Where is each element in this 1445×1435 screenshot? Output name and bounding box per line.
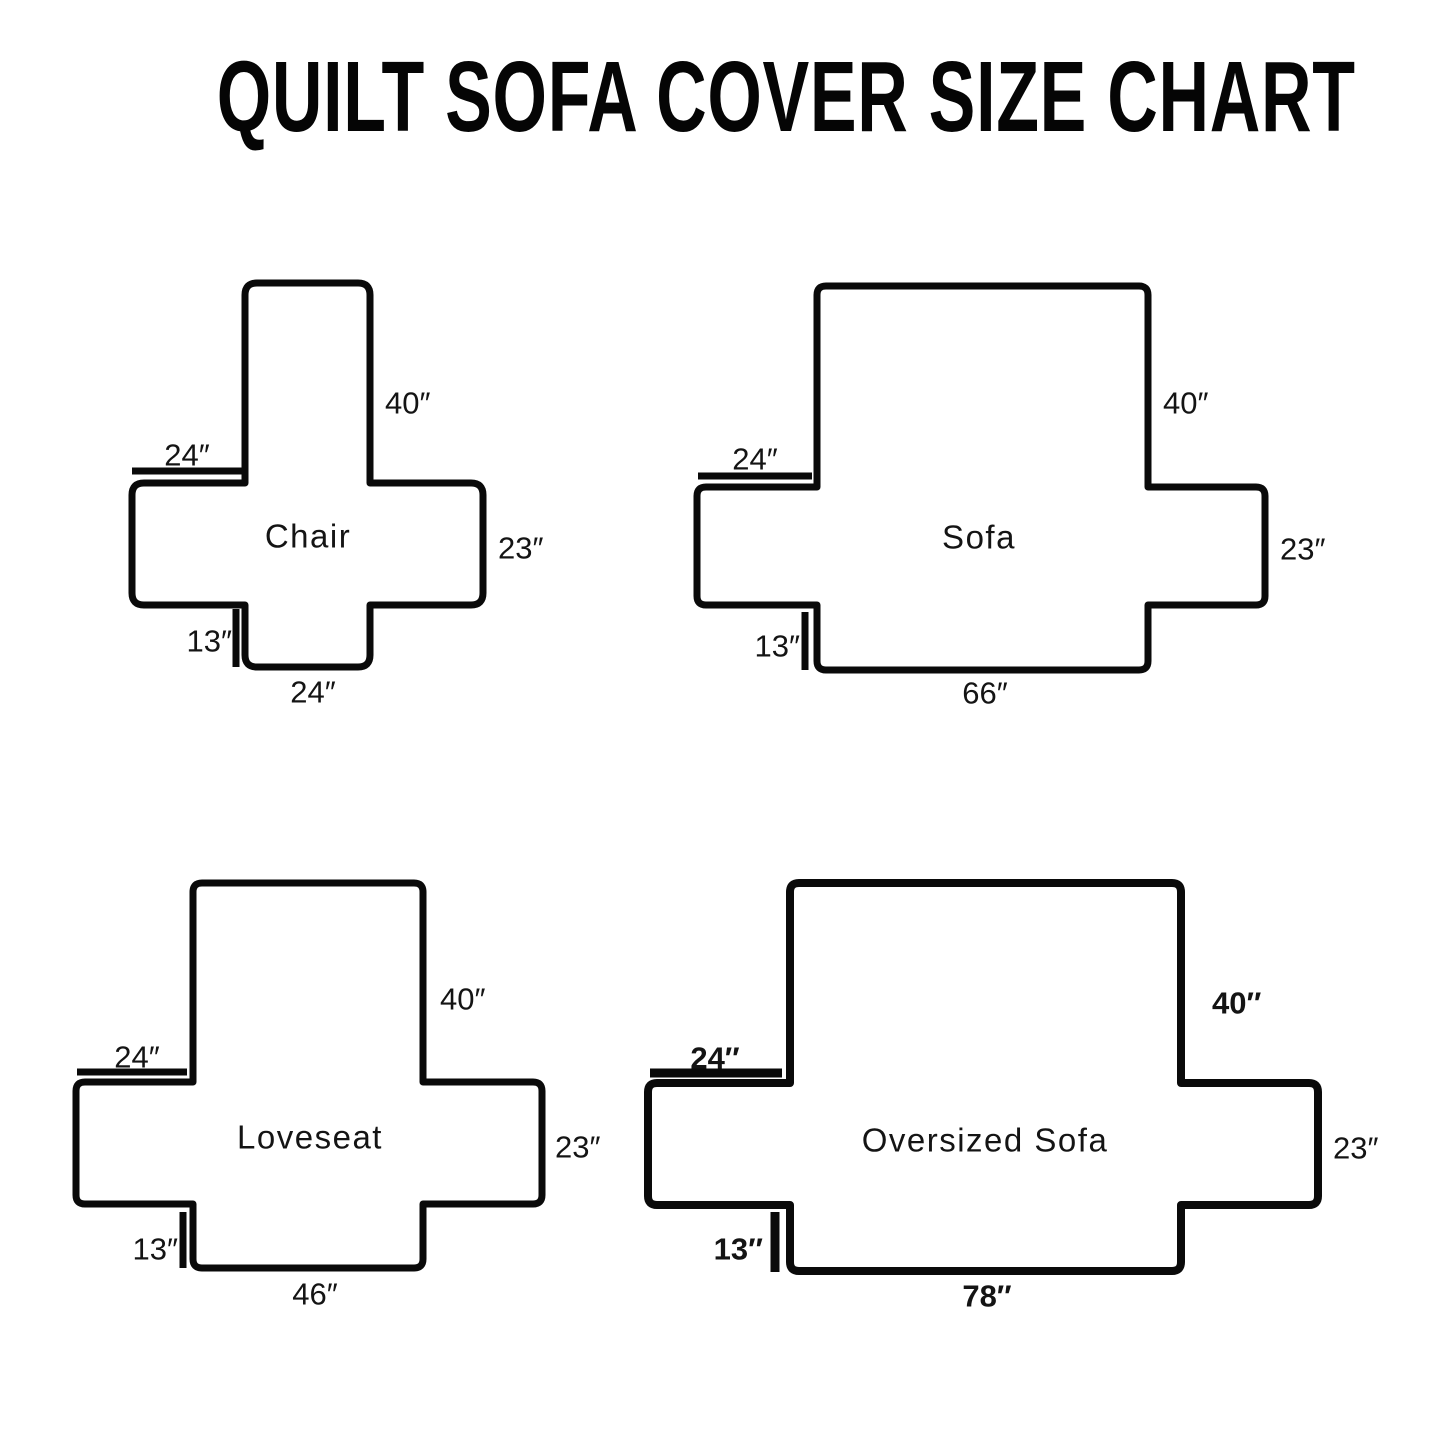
- sofa-seat-width-label: 66″: [962, 678, 1007, 709]
- oversized-sofa-skirt-drop-label: 13″: [714, 1234, 763, 1265]
- sofa-name-label: Sofa: [942, 521, 1016, 554]
- size-chart-page: QUILT SOFA COVER SIZE CHART 40″ 24″ Chai…: [0, 0, 1445, 1435]
- oversized-sofa-name-label: Oversized Sofa: [862, 1124, 1109, 1157]
- oversized-sofa-arm-depth-label: 23″: [1333, 1133, 1378, 1164]
- oversized-sofa-seat-width-label: 78″: [962, 1281, 1011, 1312]
- loveseat-seat-width-label: 46″: [292, 1279, 337, 1310]
- loveseat-name-label: Loveseat: [237, 1121, 383, 1154]
- chair-name-label: Chair: [265, 520, 351, 553]
- sofa-back-width-label: 24″: [732, 444, 777, 475]
- loveseat-back-width-label: 24″: [114, 1042, 159, 1073]
- loveseat-skirt-drop-label: 13″: [133, 1234, 178, 1265]
- chair-seat-width-label: 24″: [290, 677, 335, 708]
- oversized-sofa-back-height-label: 40″: [1212, 988, 1261, 1019]
- cover-outlines-layer: [0, 0, 1445, 1435]
- sofa-arm-depth-label: 23″: [1280, 534, 1325, 565]
- sofa-back-height-label: 40″: [1163, 388, 1208, 419]
- chair-arm-depth-label: 23″: [498, 533, 543, 564]
- oversized-sofa-back-width-label: 24″: [690, 1043, 739, 1074]
- sofa-skirt-drop-label: 13″: [755, 631, 800, 662]
- chair-back-width-label: 24″: [164, 440, 209, 471]
- loveseat-back-height-label: 40″: [440, 984, 485, 1015]
- chair-back-height-label: 40″: [385, 388, 430, 419]
- loveseat-arm-depth-label: 23″: [555, 1132, 600, 1163]
- chair-skirt-drop-label: 13″: [187, 626, 232, 657]
- chair-outline-shape: [132, 283, 483, 667]
